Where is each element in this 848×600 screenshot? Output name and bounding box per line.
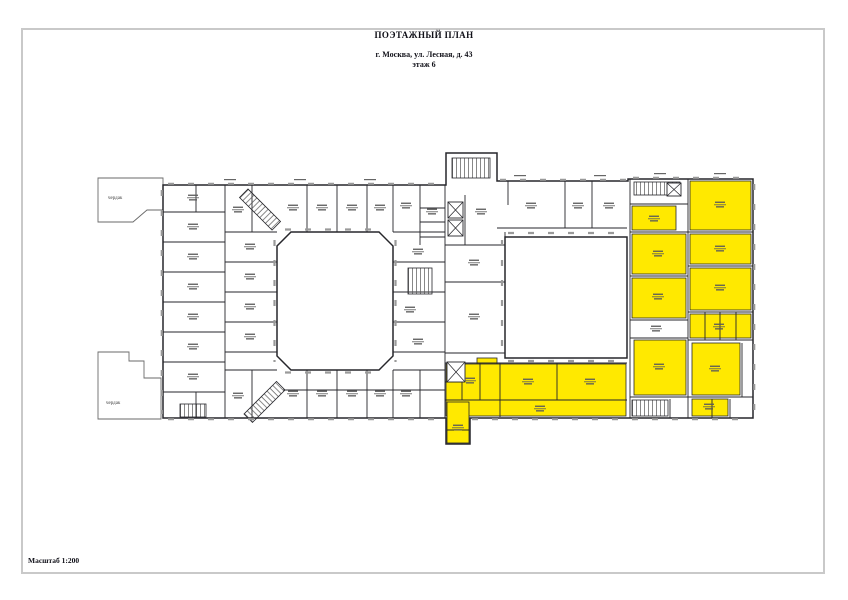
stair-icon xyxy=(180,404,206,417)
elevator-icon xyxy=(448,202,463,218)
highlighted-room xyxy=(692,399,728,416)
highlighted-room xyxy=(632,278,686,318)
highlighted-room xyxy=(690,181,751,230)
highlighted-room xyxy=(690,268,751,310)
attic-bottom-outline xyxy=(98,352,161,419)
highlighted-strip xyxy=(446,364,626,416)
attic-top-label: чердак xyxy=(108,196,123,201)
elevator-icon xyxy=(448,220,463,236)
stair-icon xyxy=(452,158,490,178)
highlighted-room xyxy=(634,340,686,395)
highlighted-room xyxy=(632,206,676,230)
attic-areas: чердак чердак xyxy=(98,178,163,419)
highlighted-annex xyxy=(447,402,469,443)
scanned-floor-plan-page: { "page": { "title": "ПОЭТАЖНЫЙ ПЛАН", "… xyxy=(0,0,848,600)
floor-plan-drawing: чердак чердак xyxy=(0,0,848,600)
highlighted-room xyxy=(690,314,751,338)
elevator-icon xyxy=(667,183,681,196)
stair-icon xyxy=(408,268,432,294)
elevator-icon xyxy=(447,362,465,382)
attic-bottom-label: чердак xyxy=(106,401,121,406)
stair-icon xyxy=(632,400,668,416)
